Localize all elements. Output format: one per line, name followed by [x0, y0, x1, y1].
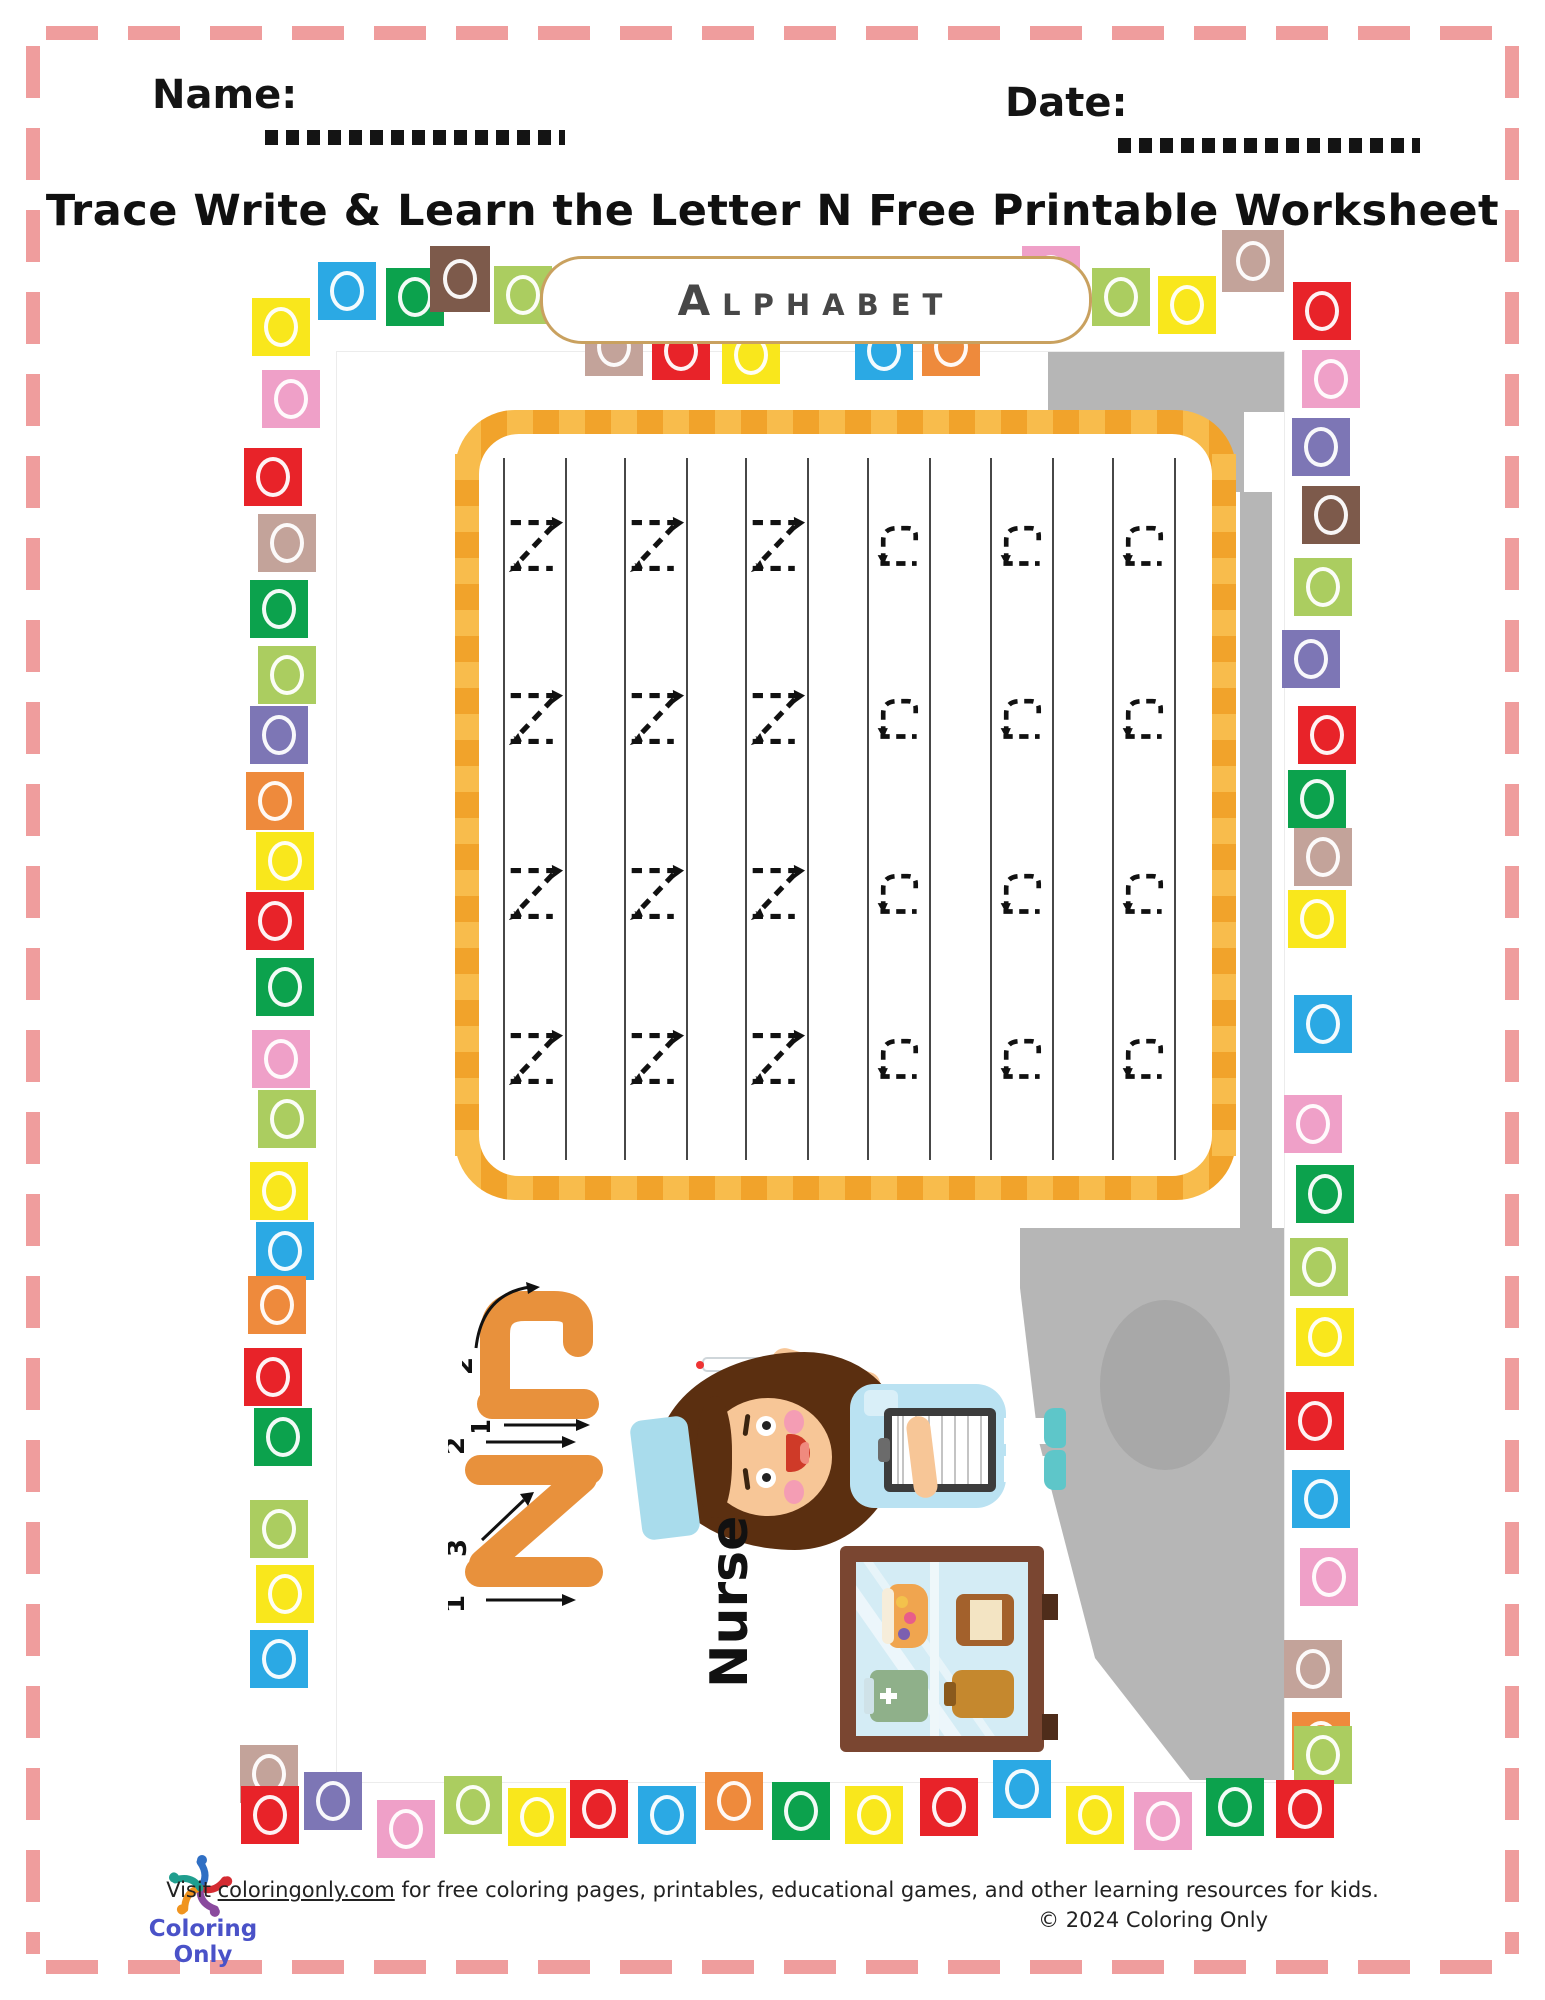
trace-letter-n[interactable] [1118, 693, 1170, 745]
date-label: Date: [1005, 80, 1127, 126]
nurse-cheek [784, 1480, 804, 1504]
svg-text:2: 2 [462, 1357, 479, 1375]
alphabet-banner-label: Alphabet [678, 276, 955, 325]
footer-visit-prefix: Visit [166, 1878, 217, 1902]
alphabet-block-pink [1134, 1792, 1192, 1850]
alphabet-block-green [772, 1782, 830, 1840]
trace-letter-n[interactable] [1118, 520, 1170, 572]
coloring-only-logo-text: Coloring Only [118, 1916, 288, 1968]
alphabet-block-orange [246, 772, 304, 830]
alphabet-block-yellow [508, 1788, 566, 1846]
pink-border-top [46, 26, 1499, 40]
alphabet-block-pink [377, 1800, 435, 1858]
alphabet-block-yellow [250, 1162, 308, 1220]
date-fill-line[interactable] [1118, 138, 1420, 153]
page-title: Trace Write & Learn the Letter N Free Pr… [0, 186, 1545, 236]
trace-letter-N[interactable] [627, 860, 685, 930]
trace-letter-n[interactable] [873, 693, 925, 745]
alphabet-block-tan [1284, 1640, 1342, 1698]
alphabet-block-green [1296, 1165, 1354, 1223]
footer-copyright: © 2024 Coloring Only [1038, 1908, 1268, 1932]
alphabet-block-brown [1302, 486, 1360, 544]
trace-letter-n[interactable] [996, 693, 1048, 745]
trace-letter-n[interactable] [873, 1033, 925, 1085]
name-label: Name: [152, 72, 297, 118]
alphabet-block-blue [256, 1222, 314, 1280]
trace-letter-n[interactable] [996, 1033, 1048, 1085]
cabinet-shelf [930, 1562, 939, 1736]
trace-letter-N[interactable] [748, 860, 806, 930]
trace-letter-N[interactable] [748, 1025, 806, 1095]
trace-letter-n[interactable] [996, 868, 1048, 920]
trace-letter-N[interactable] [748, 512, 806, 582]
uppercase-n-stroke-guide: 2 3 1 [448, 1432, 618, 1612]
trace-letter-N[interactable] [506, 512, 564, 582]
alphabet-block-blue [993, 1760, 1051, 1818]
cabinet-foot [1042, 1594, 1058, 1620]
alphabet-block-purple [1282, 630, 1340, 688]
alphabet-block-pink [252, 1030, 310, 1088]
trace-letter-N[interactable] [748, 685, 806, 755]
thermometer-tip [696, 1361, 704, 1369]
nurse-cheek [784, 1410, 804, 1434]
svg-text:3: 3 [448, 1539, 473, 1557]
trace-letter-N[interactable] [506, 1025, 564, 1095]
alphabet-block-lightgreen [444, 1776, 502, 1834]
coloringonly-link[interactable]: coloringonly.com [218, 1878, 395, 1902]
alphabet-block-blue [1292, 1470, 1350, 1528]
svg-text:2: 2 [448, 1437, 471, 1455]
alphabet-block-blue [318, 262, 376, 320]
alphabet-block-pink [1284, 1095, 1342, 1153]
alphabet-block-blue [250, 1630, 308, 1688]
name-fill-line[interactable] [265, 130, 565, 145]
svg-text:1: 1 [448, 1595, 471, 1612]
alphabet-block-red [1286, 1392, 1344, 1450]
alphabet-block-tan [1294, 828, 1352, 886]
alphabet-block-orange [705, 1772, 763, 1830]
clipboard-clip [878, 1438, 890, 1462]
alphabet-block-lightgreen [258, 646, 316, 704]
alphabet-block-lightgreen [258, 1090, 316, 1148]
alphabet-block-yellow [845, 1786, 903, 1844]
alphabet-block-yellow [1066, 1786, 1124, 1844]
trace-letter-n[interactable] [1118, 868, 1170, 920]
alphabet-block-yellow [1288, 890, 1346, 948]
alphabet-block-tan [1222, 230, 1284, 292]
svg-text:1: 1 [467, 1419, 497, 1432]
alphabet-block-purple [250, 706, 308, 764]
alphabet-block-green [1288, 770, 1346, 828]
alphabet-block-yellow [256, 1565, 314, 1623]
alphabet-block-blue [638, 1786, 696, 1844]
lowercase-n-stroke-guide: 2 1 [462, 1282, 612, 1432]
word-label: Nurse [700, 1498, 760, 1688]
alphabet-block-green [1206, 1778, 1264, 1836]
alphabet-block-red [244, 448, 302, 506]
alphabet-block-green [250, 580, 308, 638]
tracing-panel-inner [479, 434, 1212, 1176]
pink-border-left [26, 46, 40, 1954]
footer-note: Visit coloringonly.com for free coloring… [0, 1878, 1545, 1902]
alphabet-block-lightgreen [1092, 268, 1150, 326]
amber-bottle [952, 1670, 1014, 1718]
nurse-illustration [612, 1228, 1172, 1788]
alphabet-block-red [1276, 1780, 1334, 1838]
alphabet-block-blue [1294, 995, 1352, 1053]
alphabet-block-yellow [1158, 276, 1216, 334]
trace-letter-N[interactable] [627, 1025, 685, 1095]
alphabet-block-pink [1302, 350, 1360, 408]
alphabet-block-red [246, 892, 304, 950]
scene-floor-notch [1244, 412, 1284, 492]
alphabet-block-lightgreen [1294, 1726, 1352, 1784]
alphabet-block-yellow [1296, 1308, 1354, 1366]
trace-letter-N[interactable] [627, 512, 685, 582]
alphabet-block-red [241, 1786, 299, 1844]
trace-letter-N[interactable] [506, 685, 564, 755]
alphabet-block-tan [258, 514, 316, 572]
alphabet-block-purple [1292, 418, 1350, 476]
trace-letter-n[interactable] [873, 520, 925, 572]
alphabet-block-lightgreen [1290, 1238, 1348, 1296]
medicine-jar-cross [870, 1670, 928, 1722]
alphabet-block-lightgreen [1294, 558, 1352, 616]
alphabet-block-red [1298, 706, 1356, 764]
nurse-shoe [1044, 1408, 1066, 1448]
alphabet-block-brown [430, 246, 490, 312]
trace-letter-n[interactable] [873, 868, 925, 920]
trace-letter-n[interactable] [996, 520, 1048, 572]
trace-letter-N[interactable] [627, 685, 685, 755]
alphabet-block-pink [1300, 1548, 1358, 1606]
alphabet-block-yellow [252, 298, 310, 356]
cabinet-foot [1042, 1714, 1058, 1740]
alphabet-block-lightgreen [250, 1500, 308, 1558]
panel-border-left [455, 454, 479, 1156]
footer-visit-suffix: for free coloring pages, printables, edu… [395, 1878, 1379, 1902]
alphabet-block-green [254, 1408, 312, 1466]
alphabet-block-red [1293, 282, 1351, 340]
alphabet-block-red [570, 1780, 628, 1838]
pink-border-right [1505, 46, 1519, 1954]
alphabet-block-yellow [256, 832, 314, 890]
panel-border-right [1212, 454, 1236, 1156]
nurse-shoe [1044, 1450, 1066, 1490]
alphabet-block-red [920, 1778, 978, 1836]
alphabet-block-orange [248, 1276, 306, 1334]
alphabet-block-green [256, 958, 314, 1016]
alphabet-block-pink [262, 370, 320, 428]
alphabet-block-red [244, 1348, 302, 1406]
trace-letter-N[interactable] [506, 860, 564, 930]
alphabet-banner: Alphabet [540, 256, 1092, 344]
trace-letter-n[interactable] [1118, 1033, 1170, 1085]
worksheet-page: Name: Date: Trace Write & Learn the Lett… [0, 0, 1545, 2000]
alphabet-block-purple [304, 1772, 362, 1830]
cabinet-glass [856, 1562, 1028, 1736]
